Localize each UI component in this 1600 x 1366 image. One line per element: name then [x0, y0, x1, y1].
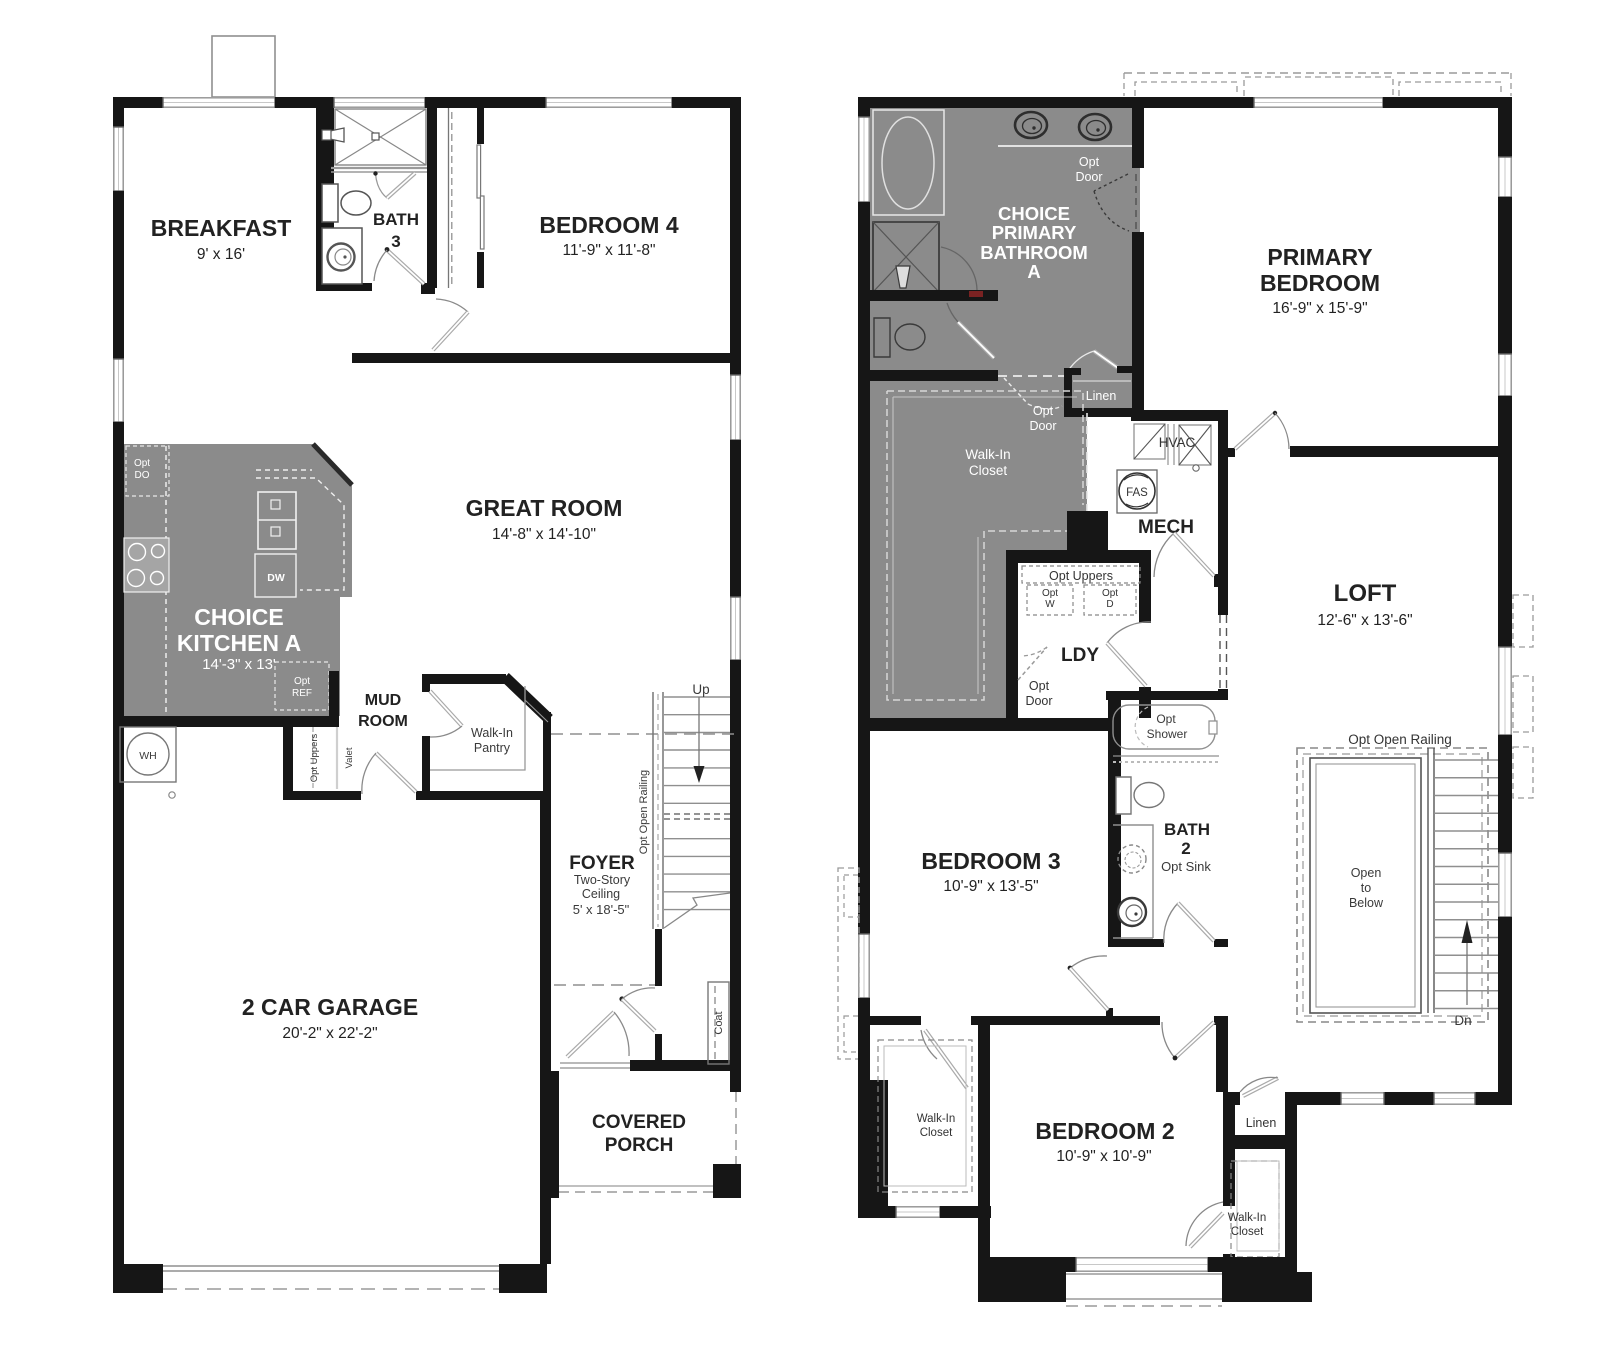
svg-text:Opt Open Railing: Opt Open Railing: [638, 770, 650, 854]
svg-text:12'-6" x 13'-6": 12'-6" x 13'-6": [1317, 612, 1412, 629]
svg-text:2 CAR GARAGE: 2 CAR GARAGE: [242, 994, 418, 1020]
svg-text:COVERED: COVERED: [592, 1112, 686, 1133]
svg-text:CHOICE: CHOICE: [998, 203, 1070, 224]
svg-text:HVAC: HVAC: [1159, 435, 1196, 450]
svg-text:Valet: Valet: [344, 747, 355, 768]
svg-text:Opt Uppers: Opt Uppers: [309, 733, 320, 782]
svg-text:BATH: BATH: [1164, 820, 1210, 839]
svg-text:14'-3" x 13': 14'-3" x 13': [202, 656, 276, 673]
svg-text:14'-8" x 14'-10": 14'-8" x 14'-10": [492, 526, 596, 543]
svg-text:KITCHEN A: KITCHEN A: [177, 630, 301, 656]
svg-text:Shower: Shower: [1147, 727, 1188, 741]
svg-text:PRIMARY: PRIMARY: [992, 222, 1077, 243]
svg-text:MUD: MUD: [365, 692, 401, 709]
svg-text:Opt: Opt: [1033, 404, 1054, 418]
svg-text:Opt: Opt: [1156, 712, 1176, 726]
svg-text:D: D: [1106, 599, 1113, 610]
svg-text:PORCH: PORCH: [605, 1135, 674, 1156]
svg-text:A: A: [1027, 261, 1040, 282]
svg-text:DO: DO: [135, 470, 150, 481]
svg-text:Open: Open: [1351, 866, 1382, 880]
svg-text:BEDROOM: BEDROOM: [1260, 270, 1380, 296]
svg-text:FAS: FAS: [1126, 487, 1148, 499]
svg-text:BATHROOM: BATHROOM: [980, 242, 1088, 263]
svg-text:Closet: Closet: [1231, 1226, 1264, 1238]
svg-text:Up: Up: [692, 682, 709, 697]
svg-text:10'-9" x 13'-5": 10'-9" x 13'-5": [943, 878, 1038, 895]
svg-text:9' x 16': 9' x 16': [197, 246, 245, 263]
svg-text:Opt Uppers: Opt Uppers: [1049, 569, 1113, 583]
svg-text:BATH: BATH: [373, 210, 419, 229]
svg-text:MECH: MECH: [1138, 517, 1194, 538]
svg-text:FOYER: FOYER: [569, 853, 635, 874]
svg-text:5' x 18'-5": 5' x 18'-5": [573, 902, 630, 917]
svg-text:2: 2: [1181, 839, 1190, 858]
svg-text:Opt: Opt: [1029, 679, 1050, 693]
svg-text:Closet: Closet: [920, 1127, 953, 1139]
svg-text:Opt: Opt: [134, 458, 150, 469]
svg-text:Walk-In: Walk-In: [917, 1113, 956, 1125]
svg-text:Two-Story: Two-Story: [574, 873, 631, 887]
svg-text:BEDROOM 3: BEDROOM 3: [921, 848, 1060, 874]
svg-text:W: W: [1045, 599, 1055, 610]
svg-text:GREAT ROOM: GREAT ROOM: [466, 495, 623, 521]
svg-text:DW: DW: [267, 572, 285, 584]
svg-text:20'-2" x 22'-2": 20'-2" x 22'-2": [282, 1025, 377, 1042]
svg-text:REF: REF: [292, 688, 312, 699]
svg-text:Below: Below: [1349, 896, 1384, 910]
svg-text:Opt: Opt: [1102, 588, 1118, 599]
svg-text:Opt: Opt: [294, 676, 310, 687]
svg-text:3: 3: [391, 232, 400, 251]
svg-text:to: to: [1361, 881, 1371, 895]
svg-text:Closet: Closet: [969, 463, 1008, 478]
svg-text:BREAKFAST: BREAKFAST: [151, 215, 292, 241]
svg-text:Pantry: Pantry: [474, 741, 511, 755]
svg-text:16'-9" x 15'-9": 16'-9" x 15'-9": [1272, 300, 1367, 317]
svg-text:Opt Sink: Opt Sink: [1161, 859, 1211, 874]
svg-text:11'-9" x 11'-8": 11'-9" x 11'-8": [562, 242, 655, 259]
svg-text:10'-9" x 10'-9": 10'-9" x 10'-9": [1056, 1148, 1151, 1165]
svg-text:Ceiling: Ceiling: [582, 887, 620, 901]
svg-text:LDY: LDY: [1061, 645, 1099, 666]
svg-text:ROOM: ROOM: [358, 713, 408, 730]
svg-text:Walk-In: Walk-In: [965, 447, 1010, 462]
svg-text:Opt Open Railing: Opt Open Railing: [1348, 732, 1452, 747]
svg-text:LOFT: LOFT: [1334, 580, 1397, 607]
svg-text:Dn: Dn: [1454, 1013, 1471, 1028]
svg-text:Coat: Coat: [713, 1011, 725, 1034]
svg-text:Opt: Opt: [1042, 588, 1058, 599]
svg-text:Door: Door: [1025, 694, 1052, 708]
svg-text:PRIMARY: PRIMARY: [1267, 244, 1372, 270]
svg-text:WH: WH: [139, 750, 157, 762]
svg-text:Walk-In: Walk-In: [471, 726, 513, 740]
svg-text:Linen: Linen: [1246, 1116, 1277, 1130]
svg-text:CHOICE: CHOICE: [194, 604, 283, 630]
svg-text:Walk-In: Walk-In: [1228, 1212, 1267, 1224]
svg-text:BEDROOM 2: BEDROOM 2: [1035, 1118, 1174, 1144]
svg-text:BEDROOM 4: BEDROOM 4: [539, 212, 679, 238]
svg-text:Door: Door: [1029, 419, 1056, 433]
svg-text:Opt: Opt: [1079, 155, 1100, 169]
svg-text:Door: Door: [1075, 170, 1102, 184]
svg-text:Linen: Linen: [1086, 389, 1117, 403]
